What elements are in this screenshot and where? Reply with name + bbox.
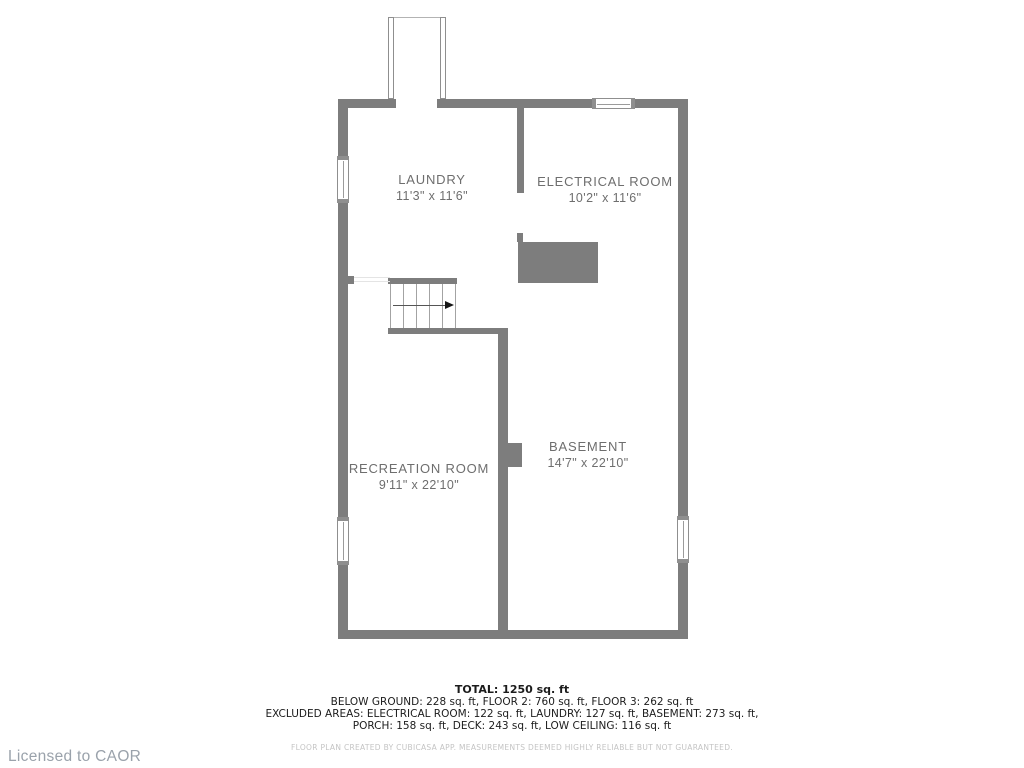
stair-wall-bottom — [388, 328, 508, 334]
excluded-areas-2: PORCH: 158 sq. ft, DECK: 243 sq. ft, LOW… — [0, 720, 1024, 732]
room-name: BASEMENT — [478, 439, 698, 454]
room-dimensions: 9'11" x 22'10" — [309, 478, 529, 493]
window-pane — [343, 522, 344, 560]
utility-block — [518, 242, 598, 283]
room-dimensions: 10'2" x 11'6" — [495, 191, 715, 206]
window-top-right — [592, 98, 635, 109]
floor-plan-canvas: LAUNDRY 11'3" x 11'6" ELECTRICAL ROOM 10… — [0, 0, 1024, 768]
wall-top-middle — [437, 99, 592, 108]
wall-bottom — [338, 630, 688, 639]
wall-stub-above-block — [517, 233, 523, 242]
room-label-basement: BASEMENT 14'7" x 22'10" — [478, 439, 698, 471]
excluded-areas-1: EXCLUDED AREAS: ELECTRICAL ROOM: 122 sq.… — [0, 708, 1024, 720]
disclaimer-text: FLOOR PLAN CREATED BY CUBICASA APP. MEAS… — [0, 743, 1024, 752]
stairs-direction-arrow-icon — [393, 305, 446, 306]
porch-wall-left — [388, 17, 394, 99]
wall-left-upper — [338, 99, 348, 156]
wall-right-lower — [678, 563, 688, 639]
window-pane — [683, 521, 684, 558]
porch-wall-right — [440, 17, 446, 99]
license-text: Licensed to CAOR — [8, 748, 141, 766]
porch-top-line — [388, 17, 446, 18]
room-label-electrical-room: ELECTRICAL ROOM 10'2" x 11'6" — [495, 174, 715, 206]
total-area: TOTAL: 1250 sq. ft — [0, 684, 1024, 696]
window-right-lower — [677, 516, 689, 563]
door-threshold — [354, 277, 390, 282]
floor-areas: BELOW GROUND: 228 sq. ft, FLOOR 2: 760 s… — [0, 696, 1024, 708]
window-pane — [597, 104, 630, 105]
window-left-lower — [337, 517, 349, 565]
area-summary: TOTAL: 1250 sq. ft BELOW GROUND: 228 sq.… — [0, 684, 1024, 732]
room-name: ELECTRICAL ROOM — [495, 174, 715, 189]
room-dimensions: 14'7" x 22'10" — [478, 456, 698, 471]
wall-left-lower — [338, 565, 348, 639]
